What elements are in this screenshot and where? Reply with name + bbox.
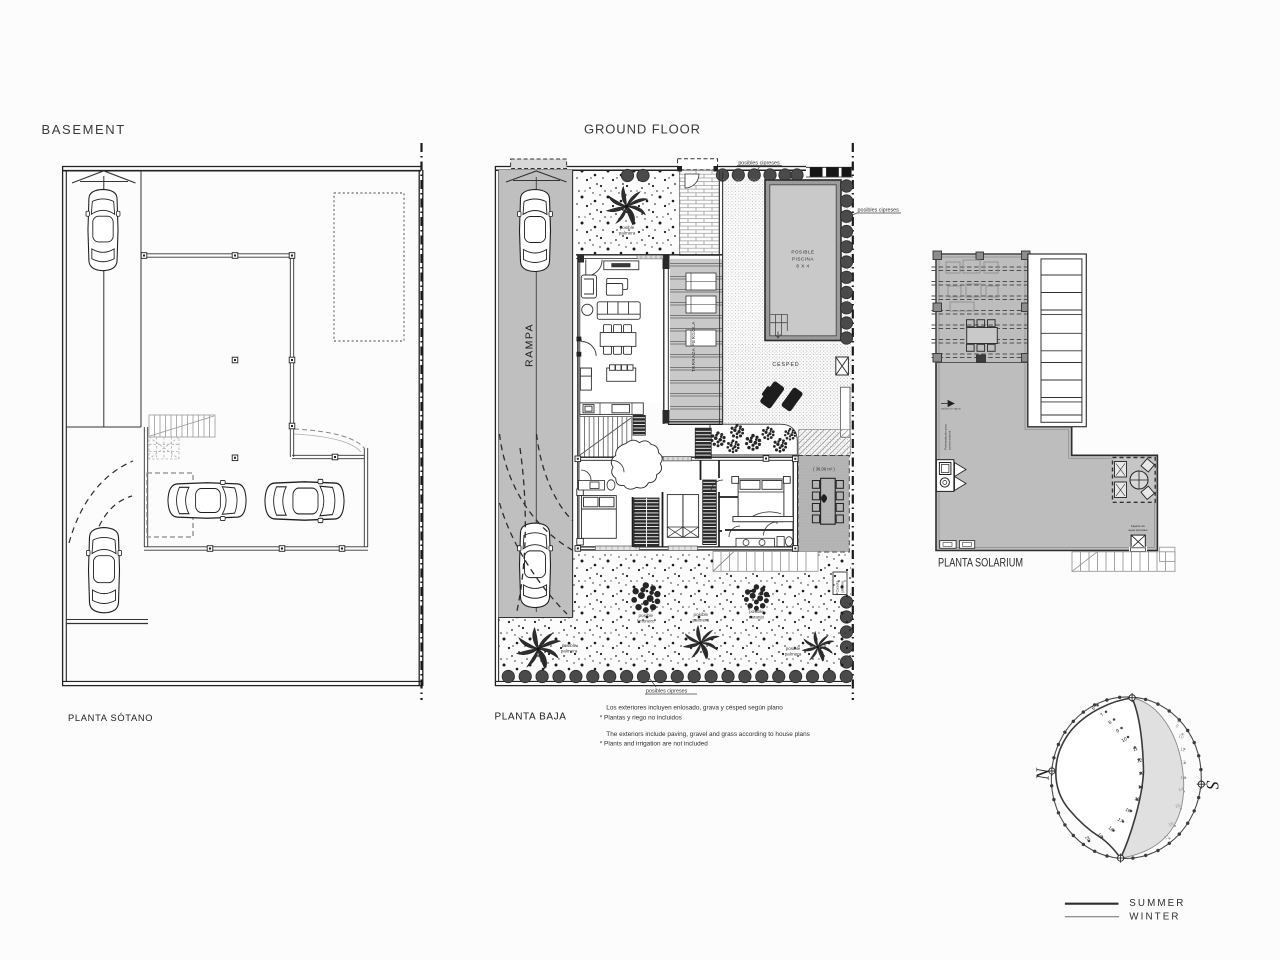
svg-text:posible: posible <box>694 612 709 617</box>
svg-text:PLANTA SÓTANO: PLANTA SÓTANO <box>68 713 153 723</box>
svg-text:PLANTA SOLARIUM: PLANTA SOLARIUM <box>938 558 1023 570</box>
svg-text:WINTER: WINTER <box>1129 912 1180 923</box>
svg-text:* Plants and irrigation are no: * Plants and irrigation are not included <box>600 741 708 748</box>
svg-text:POSIBLE: POSIBLE <box>791 250 814 255</box>
svg-text:8 X 4: 8 X 4 <box>796 264 809 269</box>
svg-text:posible: posible <box>639 613 654 618</box>
svg-text:PISCINA: PISCINA <box>792 257 814 262</box>
svg-text:posible: posible <box>620 225 635 230</box>
svg-text:palmera: palmera <box>785 652 802 657</box>
svg-text:posible: posible <box>749 609 764 614</box>
svg-text:* Plantas y riego no incluidos: * Plantas y riego no incluidos <box>600 715 682 722</box>
svg-text:palmera: palmera <box>561 649 578 654</box>
svg-text:( 36,06 m² ): ( 36,06 m² ) <box>813 467 835 472</box>
svg-text:agua pluviales: agua pluviales <box>1128 528 1148 532</box>
svg-text:CESPED: CESPED <box>772 362 799 368</box>
svg-text:posible: posible <box>786 646 801 651</box>
svg-text:palmera: palmera <box>619 231 636 236</box>
svg-text:GROUND FLOOR: GROUND FLOOR <box>584 122 701 137</box>
svg-text:S: S <box>1203 781 1223 790</box>
svg-text:BASEMENT: BASEMENT <box>42 122 126 137</box>
svg-text:N: N <box>1033 767 1053 781</box>
svg-text:The exteriors include paving,: The exteriors include paving, gravel and… <box>606 731 810 738</box>
svg-text:SUMMER: SUMMER <box>1129 898 1185 909</box>
svg-text:posible: posible <box>562 643 577 648</box>
svg-text:limonero: limonero <box>637 619 655 624</box>
svg-text:PLANTA BAJA: PLANTA BAJA <box>495 712 567 723</box>
svg-text:posibles cipreses: posibles cipreses <box>646 689 688 695</box>
svg-text:palmera: palmera <box>692 618 709 623</box>
svg-text:posibles cipreses: posibles cipreses <box>858 208 900 214</box>
svg-text:RAMPA: RAMPA <box>524 323 536 367</box>
svg-text:salida de agua: salida de agua <box>941 407 961 411</box>
svg-text:naranjo: naranjo <box>749 615 765 620</box>
svg-text:TERRAZA PERGOLA: TERRAZA PERGOLA <box>691 321 696 372</box>
svg-text:Los exteriores incluyen enlosa: Los exteriores incluyen enlosado, grava … <box>606 705 783 712</box>
svg-text:cocina exterior: cocina exterior <box>948 430 952 450</box>
